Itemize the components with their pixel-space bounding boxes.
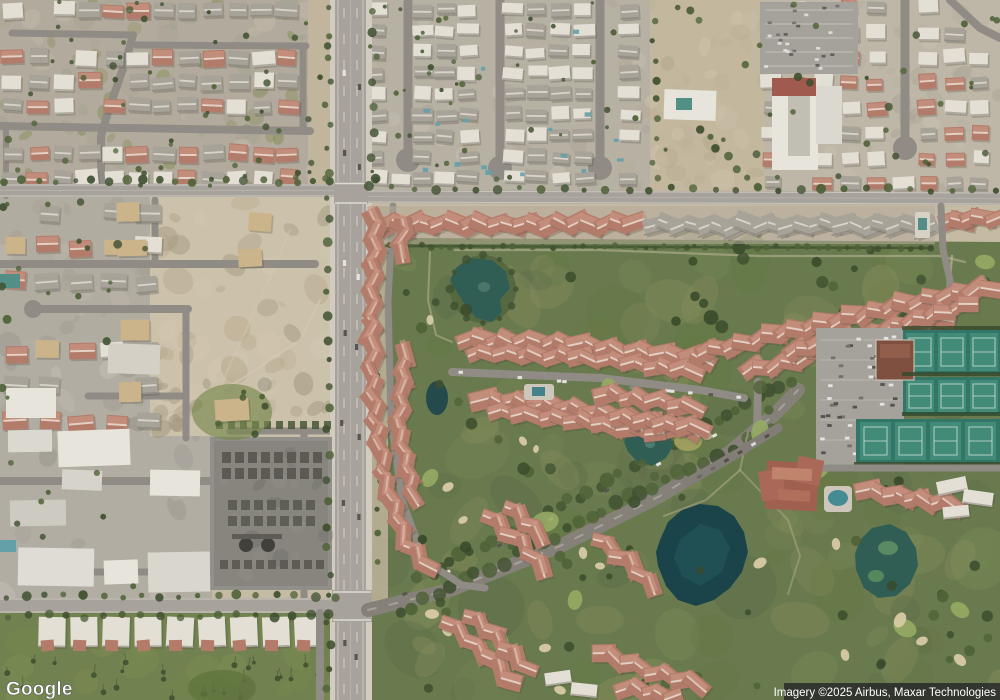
svg-text:Google: Google bbox=[6, 679, 73, 700]
svg-text:Imagery ©2025 Airbus, Maxar Te: Imagery ©2025 Airbus, Maxar Technologies bbox=[774, 687, 997, 699]
